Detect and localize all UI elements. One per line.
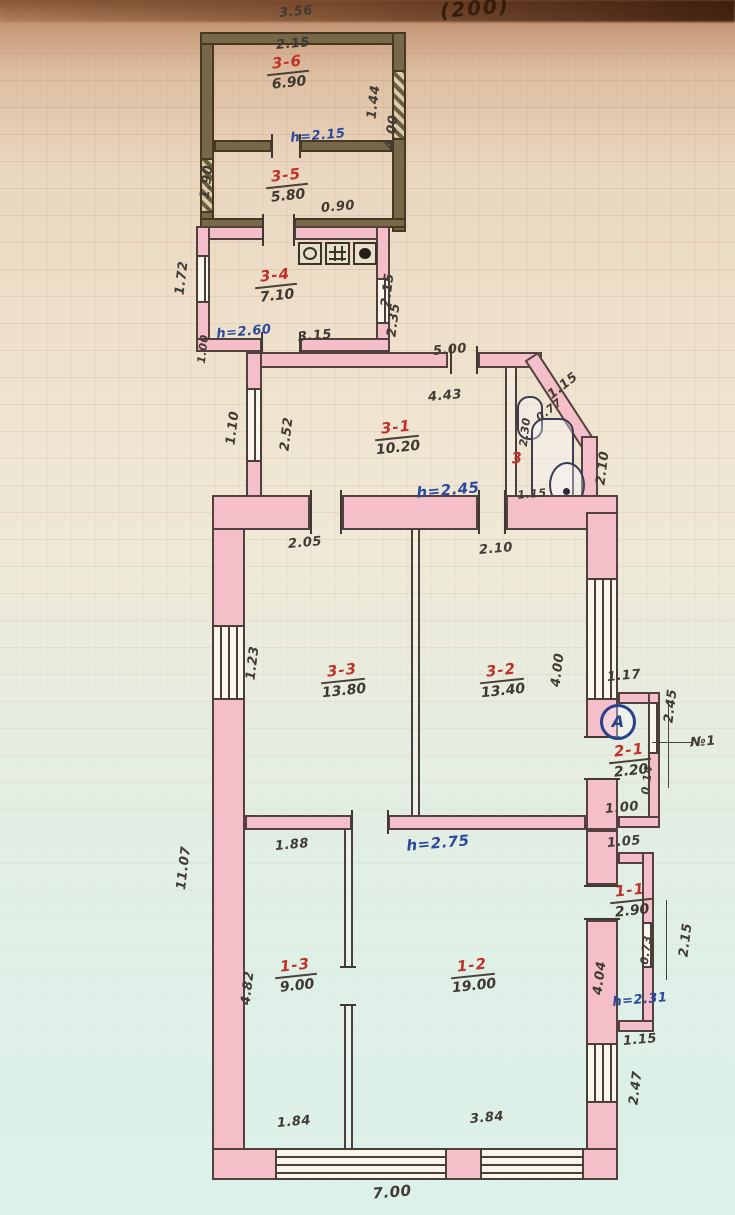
dim: 1.44: [364, 84, 383, 120]
bathroom-number: 3: [511, 449, 523, 468]
dim: 1.00: [195, 334, 211, 365]
dim: 1.23: [243, 645, 262, 681]
dim: 5.00: [432, 341, 467, 359]
window: [246, 388, 262, 462]
room-label-3-4: 3-4 7.10: [253, 264, 299, 306]
room-label-3-2: 3-2 13.40: [478, 659, 526, 701]
wall: [246, 352, 448, 368]
height-note: h=2.31: [612, 990, 668, 1010]
room-area: 5.80: [266, 185, 310, 206]
door-jamb: [340, 490, 342, 534]
window: [196, 255, 210, 303]
door-jamb: [504, 490, 506, 534]
boiler-circle-icon: [359, 248, 371, 259]
room-area: 19.00: [451, 975, 497, 997]
wall: [212, 495, 245, 1180]
dim: 1.00: [604, 799, 639, 817]
floor-plan: 3-6 6.90 3-5 5.80 3-4 7.10 3-1 10.20 3-3…: [0, 0, 735, 1215]
dim: 1.17: [606, 667, 641, 685]
dim-line: [652, 742, 692, 743]
sink-icon: [298, 242, 322, 265]
window: [480, 1148, 584, 1180]
height-note: h=2.60: [216, 322, 272, 342]
door-jamb: [340, 966, 356, 968]
wall: [342, 495, 478, 530]
dim: 3.84: [469, 1109, 504, 1127]
dim: 2.35: [384, 302, 403, 338]
dim: 2.47: [626, 1070, 645, 1106]
dim: 0.90: [320, 198, 355, 216]
room-area: 7.10: [255, 285, 299, 306]
room-area: 10.20: [375, 437, 421, 459]
height-note: h=2.75: [406, 831, 471, 854]
partition-wall: [344, 830, 353, 968]
dim: 4.00: [548, 652, 567, 688]
window: [275, 1148, 447, 1180]
dim: 4.82: [238, 970, 257, 1006]
dim: 2.10: [593, 450, 612, 486]
room-label-3-6: 3-6 6.90: [265, 51, 311, 93]
room-label-1-2: 1-2 19.00: [449, 954, 497, 996]
dim: 3.56: [278, 3, 313, 21]
room-label-3-3: 3-3 13.80: [319, 659, 367, 701]
point-a-marker: A: [600, 704, 636, 740]
room-label-3-1: 3-1 10.20: [373, 416, 421, 458]
dim: 4.43: [427, 387, 462, 405]
dim: 2.05: [287, 534, 322, 552]
dim: 2.52: [277, 416, 296, 452]
partition-wall: [344, 1006, 353, 1148]
dim: 7.00: [372, 1181, 412, 1202]
dim: 2.15: [676, 922, 695, 958]
boiler-icon: [353, 242, 377, 265]
dim: 1.10: [223, 410, 242, 446]
wall: [245, 815, 352, 830]
room-area: 6.90: [267, 72, 311, 93]
dim: 1.05: [606, 833, 641, 851]
sink-bowl-icon: [303, 247, 317, 260]
stove-icon: [325, 242, 350, 265]
room-area: 9.00: [275, 975, 319, 996]
door-jamb: [478, 490, 480, 534]
dim: 11.07: [174, 845, 194, 890]
stove-burners-icon: [329, 246, 346, 261]
wall: [214, 140, 272, 152]
window: [212, 625, 245, 700]
room-label-1-1: 1-1 2.90: [608, 879, 654, 921]
dim: 2.15: [275, 35, 310, 53]
dim: 1.72: [172, 260, 191, 296]
wall: [618, 816, 660, 828]
window: [586, 1043, 618, 1103]
door-jamb: [271, 134, 273, 158]
dim: 1.88: [274, 836, 309, 854]
wall: [212, 495, 310, 530]
toilet-dot-icon: [563, 488, 570, 495]
room-area: 13.40: [480, 680, 526, 702]
wall: [388, 815, 586, 830]
dim: 2.45: [661, 688, 680, 724]
room-label-3-5: 3-5 5.80: [264, 164, 310, 206]
wall: [618, 1020, 654, 1032]
door-jamb: [476, 346, 478, 374]
door-jamb: [387, 810, 389, 834]
dim: 1.15: [622, 1031, 657, 1049]
door-jamb: [293, 214, 295, 246]
room-area: 13.80: [321, 680, 367, 702]
partition-wall: [505, 368, 517, 513]
dim: 1.15: [517, 486, 547, 501]
mark-n1: №1: [690, 733, 717, 750]
dim: 3.15: [297, 327, 332, 345]
door-jamb: [262, 214, 264, 246]
door-jamb: [310, 490, 312, 534]
partition-wall: [411, 530, 420, 815]
dim-line: [666, 900, 667, 980]
dim: 2.10: [478, 540, 513, 558]
door-jamb: [340, 1004, 356, 1006]
dim: 1.84: [276, 1113, 311, 1131]
room-label-1-3: 1-3 9.00: [273, 954, 319, 996]
